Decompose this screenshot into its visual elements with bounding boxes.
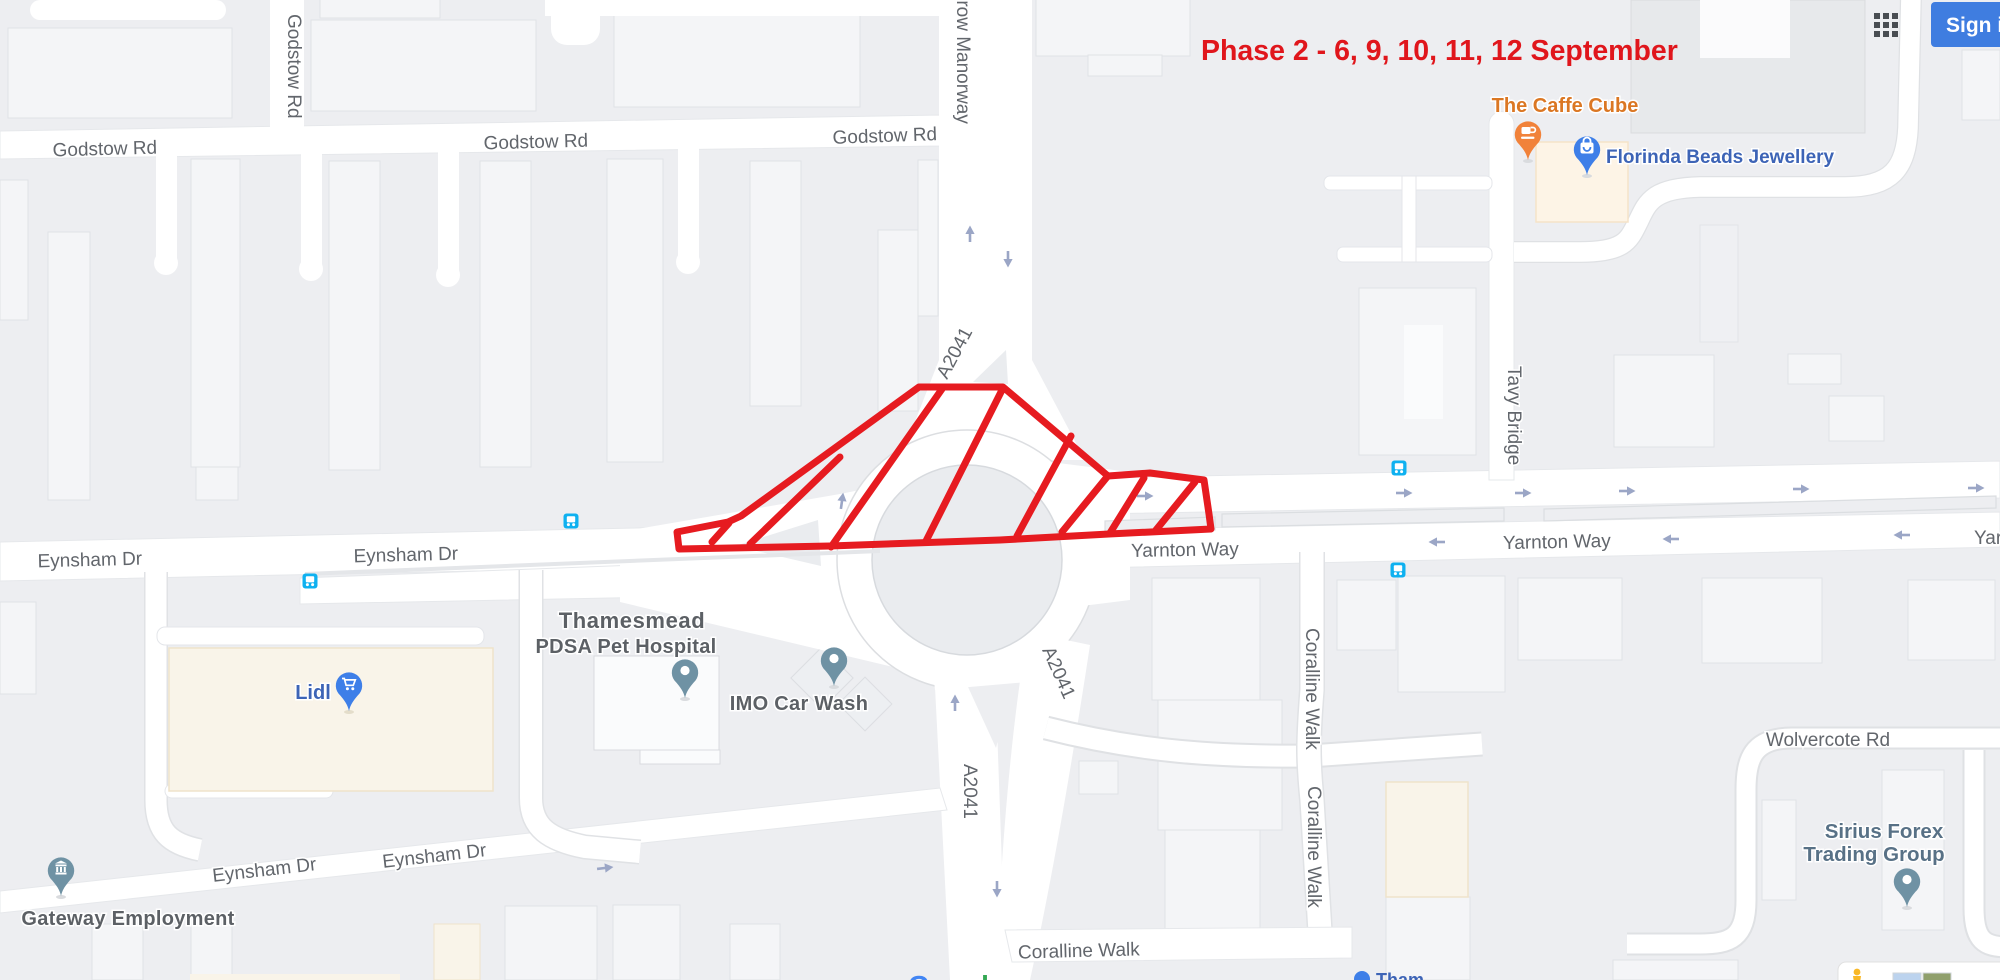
svg-text:Yarnton Way: Yarnton Way: [1131, 539, 1240, 562]
svg-text:Eynsham Dr: Eynsham Dr: [353, 544, 459, 568]
svg-text:Coralline Walk: Coralline Walk: [1301, 628, 1322, 750]
svg-text:Sirius Forex: Sirius Forex: [1825, 820, 1944, 843]
svg-text:Sign in: Sign in: [1946, 14, 2000, 37]
svg-text:Coralline Walk: Coralline Walk: [1303, 786, 1324, 908]
svg-text:Lidl: Lidl: [295, 682, 331, 704]
svg-text:Google: Google: [908, 970, 1004, 980]
svg-text:Wolvercote Rd: Wolvercote Rd: [1766, 730, 1890, 751]
svg-text:IMO Car Wash: IMO Car Wash: [730, 693, 868, 715]
svg-text:A2041: A2041: [959, 764, 980, 819]
svg-text:Phase 2 - 6, 9, 10, 11, 12 Sep: Phase 2 - 6, 9, 10, 11, 12 September: [1201, 35, 1678, 67]
svg-text:Yarnton Way: Yarnton Way: [1503, 531, 1612, 554]
svg-text:Godstow Rd: Godstow Rd: [52, 138, 157, 162]
svg-text:PDSA Pet Hospital: PDSA Pet Hospital: [535, 636, 716, 658]
svg-text:Yarn: Yarn: [1974, 528, 2000, 549]
svg-text:Thamesmead: Thamesmead: [559, 608, 706, 633]
svg-text:rrow Manorway: rrow Manorway: [952, 0, 973, 124]
svg-text:Godstow Rd: Godstow Rd: [283, 14, 304, 119]
svg-text:Tavy Bridge: Tavy Bridge: [1503, 366, 1524, 465]
svg-text:Coralline Walk: Coralline Walk: [1018, 939, 1141, 963]
svg-text:Tham: Tham: [1376, 970, 1424, 980]
svg-text:The Caffe Cube: The Caffe Cube: [1492, 95, 1639, 117]
svg-text:Florinda Beads Jewellery: Florinda Beads Jewellery: [1606, 147, 1835, 168]
svg-text:Trading Group: Trading Group: [1803, 843, 1944, 866]
svg-text:Godstow Rd: Godstow Rd: [483, 131, 588, 155]
svg-text:Eynsham Dr: Eynsham Dr: [37, 549, 143, 573]
svg-text:Gateway Employment: Gateway Employment: [21, 908, 234, 930]
svg-text:Godstow Rd: Godstow Rd: [832, 124, 937, 149]
